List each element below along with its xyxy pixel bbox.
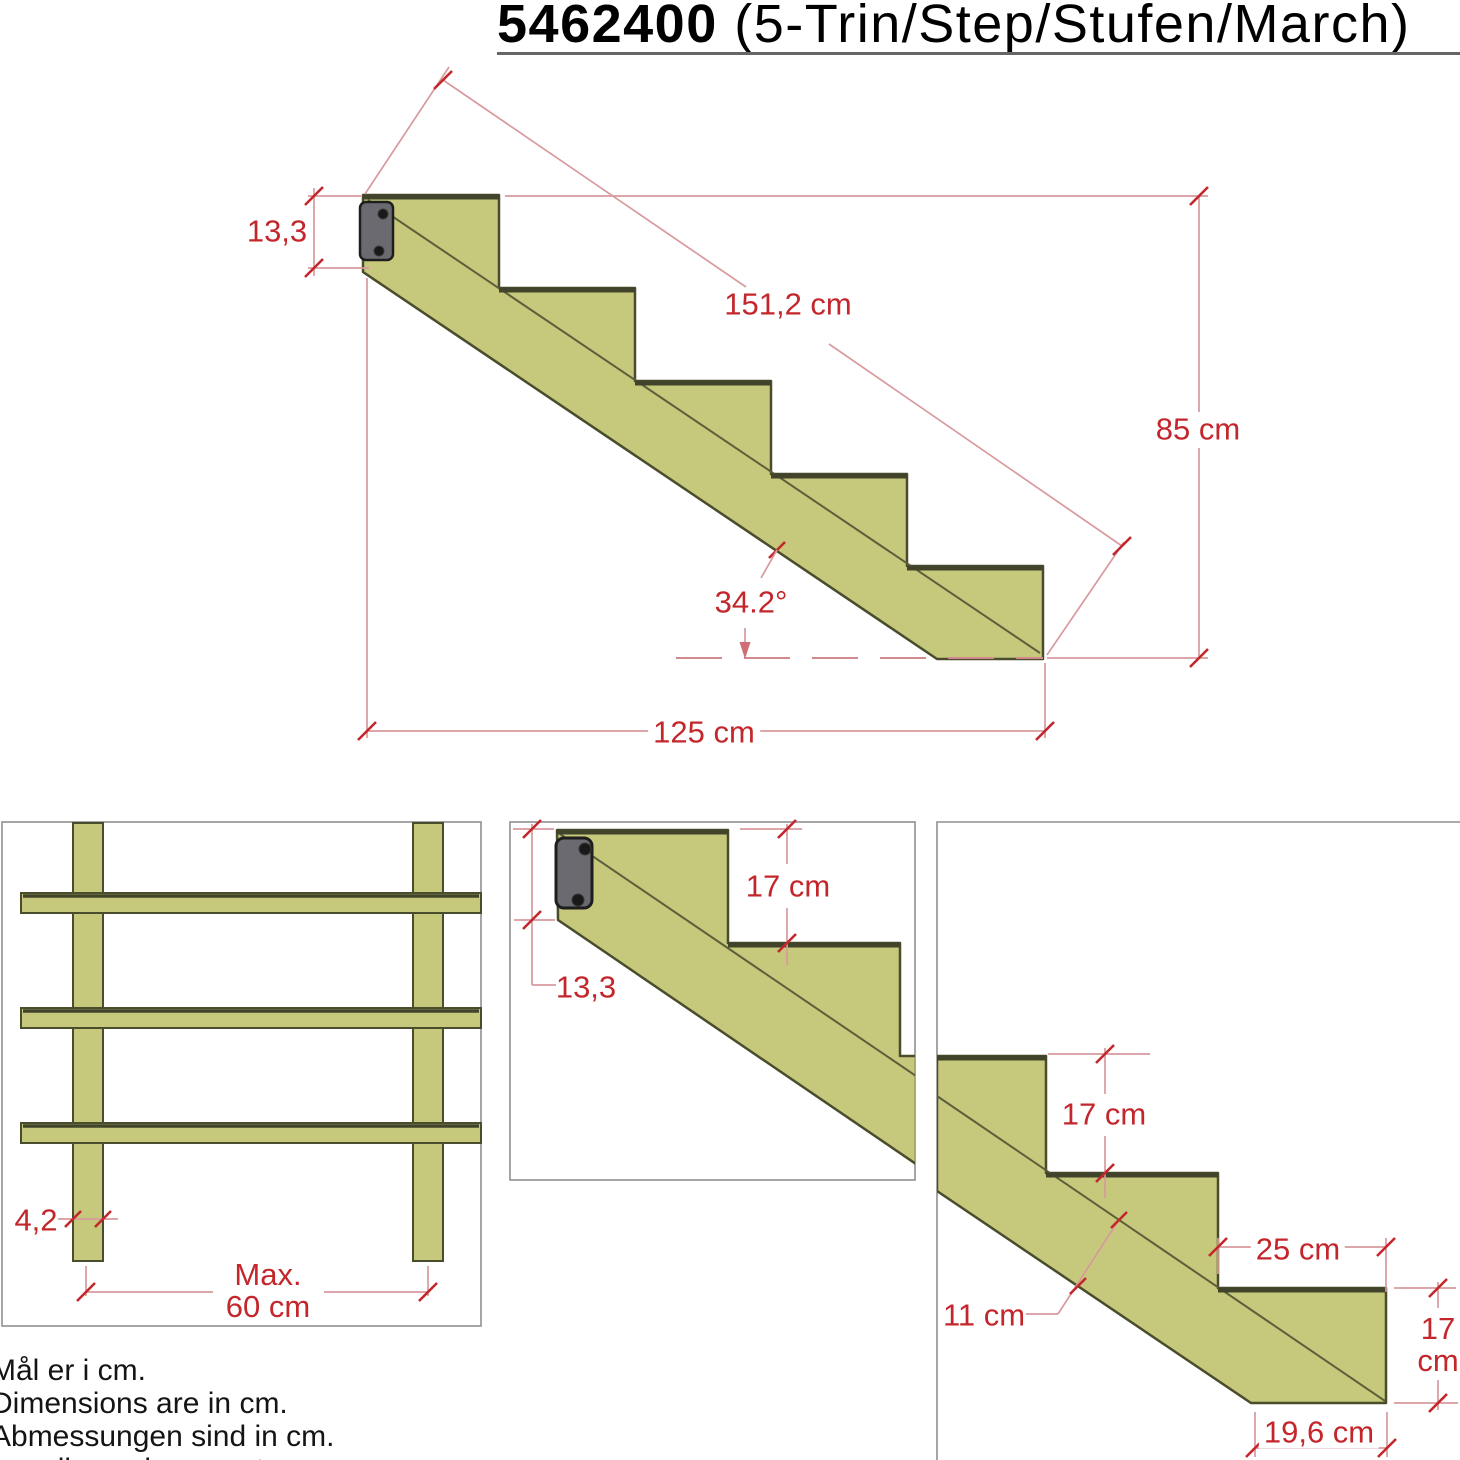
dim-max-spacing: Max. 60 cm — [226, 1259, 310, 1323]
stringer-board-edge — [368, 200, 1040, 653]
title-underline — [497, 52, 1460, 55]
dim-riser-height-detail: 17 cm — [741, 870, 835, 903]
dim-stringer-thickness: 4,2 — [14, 1205, 57, 1236]
note-line: Mål er i cm. — [0, 1354, 363, 1387]
dim-stringer-length: 151,2 cm — [719, 288, 857, 321]
note-line: Abmessungen sind in cm. — [0, 1420, 363, 1453]
title-suffix: (5-Trin/Step/Stufen/March) — [718, 0, 1411, 54]
left-stringer-board — [73, 823, 103, 1261]
part-number: 5462400 — [497, 0, 718, 54]
page-title: 5462400 (5-Trin/Step/Stufen/March) — [497, 0, 1410, 55]
dim-tread-run: 25 cm — [1251, 1233, 1345, 1266]
front-view-drawing — [2, 822, 481, 1326]
stringer-step-detail — [937, 1056, 1386, 1403]
note-line: Dimensions are in cm. — [0, 1387, 363, 1420]
stair-technical-drawing: 5462400 (5-Trin/Step/Stufen/March) 13,3 … — [0, 0, 1460, 1460]
bracket-screw — [374, 246, 384, 256]
note-line: Les dimensions sont en cm. — [0, 1453, 363, 1460]
dim-bottom-length: 19,6 cm — [1259, 1416, 1379, 1449]
dim-angle: 34.2° — [715, 587, 788, 618]
bracket-screw — [579, 843, 591, 855]
dim-right-riser: 17 cm — [1417, 1313, 1458, 1377]
units-notes: Mål er i cm. Dimensions are in cm. Abmes… — [0, 1354, 363, 1460]
dim-stringer-depth: 11 cm — [943, 1300, 1025, 1331]
dim-total-run: 125 cm — [648, 716, 760, 749]
dim-stringer-top-width-detail: 13,3 — [556, 972, 616, 1003]
right-stringer-board — [413, 823, 443, 1261]
dim-total-height: 85 cm — [1151, 413, 1245, 446]
dim-stringer-top-width: 13,3 — [247, 216, 307, 247]
dim-riser-height-step: 17 cm — [1057, 1098, 1151, 1131]
bracket-screw — [572, 894, 584, 906]
bracket-screw — [378, 209, 388, 219]
main-view-drawing — [305, 67, 1208, 740]
step-detail-drawing — [937, 822, 1460, 1460]
